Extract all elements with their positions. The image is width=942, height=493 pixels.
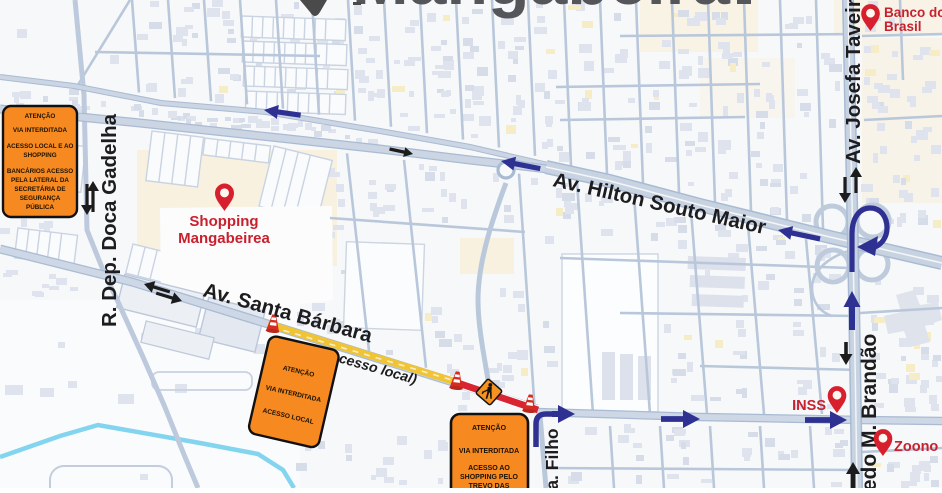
svg-text:ATENÇÃO: ATENÇÃO xyxy=(472,423,507,432)
svg-text:ACESSO AO: ACESSO AO xyxy=(468,465,510,472)
svg-text:Av. Josefa Taveira: Av. Josefa Taveira xyxy=(842,0,865,164)
svg-text:BANCÁRIOS ACESSO: BANCÁRIOS ACESSO xyxy=(7,166,73,175)
svg-text:Brasil: Brasil xyxy=(884,19,922,34)
svg-text:Macedo M. Brandão: Macedo M. Brandão xyxy=(858,334,881,488)
svg-text:ACESSO LOCAL E AO: ACESSO LOCAL E AO xyxy=(7,143,74,150)
svg-text:SHOPPING PELO: SHOPPING PELO xyxy=(460,474,519,481)
svg-text:SEGURANÇA: SEGURANÇA xyxy=(20,195,61,202)
svg-text:VIA INTERDITADA: VIA INTERDITADA xyxy=(13,127,68,134)
svg-text:VIA INTERDITADA: VIA INTERDITADA xyxy=(459,448,519,455)
svg-text:R. Dep. Doca Gadelha: R. Dep. Doca Gadelha xyxy=(98,113,121,327)
svg-text:Mangabeira: Mangabeira xyxy=(352,0,731,19)
svg-text:Banco do: Banco do xyxy=(884,5,942,20)
svg-text:Shopping: Shopping xyxy=(189,213,258,230)
svg-text:INSS: INSS xyxy=(792,398,826,414)
svg-text:Zoono: Zoono xyxy=(894,439,938,455)
svg-text:SHOPPING: SHOPPING xyxy=(23,152,56,159)
svg-text:ATENÇÃO: ATENÇÃO xyxy=(25,111,56,120)
svg-text:PELA LATERAL DA: PELA LATERAL DA xyxy=(11,177,69,184)
svg-text:João Ga. Filho: João Ga. Filho xyxy=(542,428,562,488)
svg-text:SECRETÁRIA DE: SECRETÁRIA DE xyxy=(14,184,65,193)
svg-text:PÚBLICA: PÚBLICA xyxy=(26,202,54,211)
svg-text:TREVO DAS: TREVO DAS xyxy=(469,483,510,488)
svg-text:Mangabeirea: Mangabeirea xyxy=(178,230,270,247)
